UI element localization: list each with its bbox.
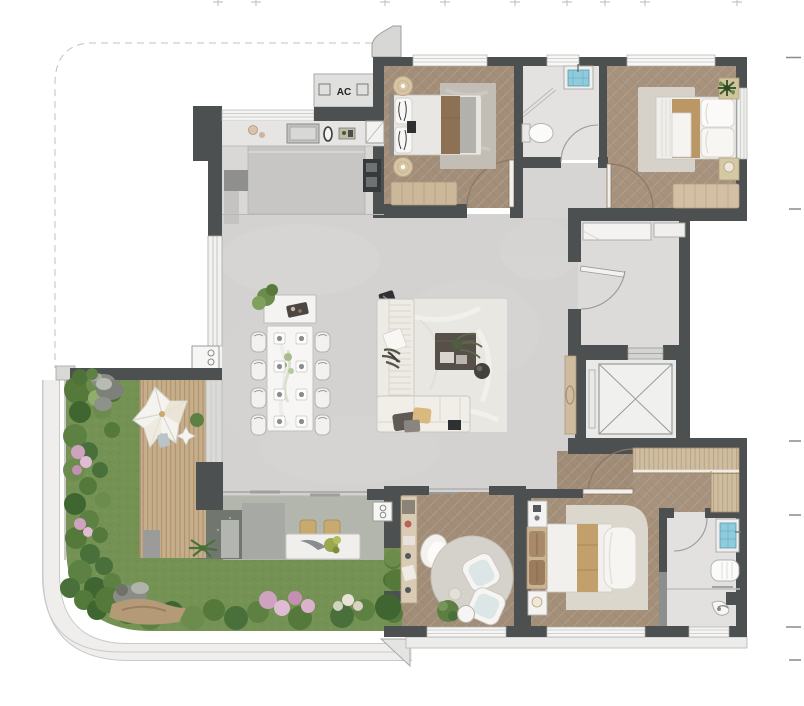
svg-text:AC: AC: [337, 87, 351, 98]
